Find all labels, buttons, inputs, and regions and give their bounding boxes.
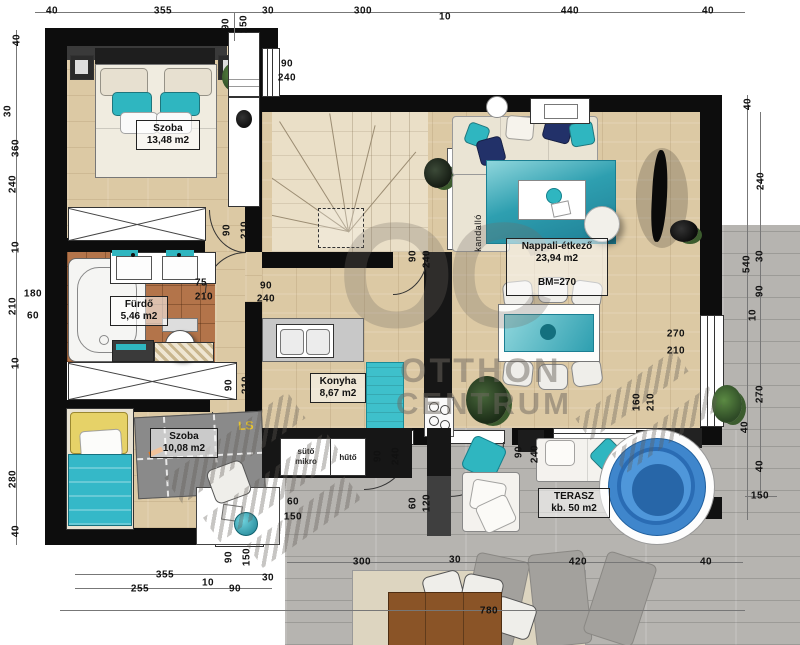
dimension-label: 30: [3, 105, 14, 117]
window-step: [262, 48, 280, 97]
dim-line-right-outer: [747, 95, 748, 520]
wardrobe-xbox-1: [68, 207, 206, 241]
pouf: [584, 206, 620, 242]
dimension-label: 255: [131, 584, 149, 595]
room-label-bathroom: Fürdő 5,46 m2: [110, 296, 168, 326]
dim-line-right-inner: [760, 112, 761, 497]
outdoor-dining-table: [388, 592, 502, 645]
dimension-label: 300: [354, 6, 372, 17]
bed-double-headboard: [95, 48, 215, 64]
sink-right: [162, 256, 198, 280]
dimension-label: 40: [12, 34, 23, 46]
wall-left: [45, 28, 67, 545]
outdoor-pillow: [545, 440, 575, 466]
sink-bowl: [306, 329, 330, 355]
plant-dark: [424, 158, 452, 188]
dim-line-left: [16, 30, 17, 545]
dining-chair: [570, 358, 603, 388]
console-table: [530, 98, 590, 124]
console-inner: [544, 104, 578, 119]
dimension-label: 40: [46, 6, 58, 17]
dimension-label: 240: [278, 73, 296, 84]
room-area: 10,08 m2: [163, 443, 205, 454]
dim-line-780: [60, 610, 745, 611]
wall-right-upper: [700, 112, 722, 315]
plant-on-cabinet: [236, 110, 252, 128]
dimension-label: 90: [281, 59, 293, 70]
kitchen-sink-unit: [276, 324, 334, 358]
room-label-bedroom2: Szoba 10,08 m2: [150, 428, 218, 458]
plant-console-dark: [670, 220, 698, 242]
dimension-label: 355: [154, 6, 172, 17]
dimension-label: 60: [27, 311, 39, 322]
dimension-label: 10: [202, 578, 214, 589]
room-label-bedroom1: Szoba 13,48 m2: [136, 120, 200, 150]
outdoor-armchair: [462, 472, 520, 532]
washer-towels-teal: [116, 344, 146, 350]
dimension-label: 355: [156, 570, 174, 581]
room-name: Szoba: [169, 431, 198, 442]
dimension-label: 40: [743, 98, 754, 110]
room-name: Fürdő: [125, 299, 153, 310]
dim-line-bottom1: [75, 574, 272, 575]
dim-line-terrace: [287, 562, 743, 563]
hot-tub-deep: [632, 464, 684, 516]
round-plate: [486, 96, 508, 118]
dimension-label: 30: [262, 6, 274, 17]
terrace-block-gray: [427, 476, 451, 536]
faucet-dot: [177, 253, 181, 257]
room-height-note: BM=270: [538, 277, 576, 288]
dimension-label: 440: [561, 6, 579, 17]
wardrobe-xbox-2: [68, 362, 237, 400]
room-area: 8,67 m2: [320, 388, 357, 399]
room-label-terrace: TERASZ kb. 50 m2: [538, 488, 610, 518]
bathtub-drain: [99, 335, 109, 345]
wall-step: [262, 28, 278, 48]
nightstand-left: [70, 55, 94, 80]
room-label-kitchen: Konyha 8,67 m2: [310, 373, 366, 403]
room-name: TERASZ: [554, 491, 594, 502]
dim-line-top-connector: [234, 13, 235, 41]
faucet-dot: [131, 253, 135, 257]
dimension-label: 240: [756, 172, 767, 190]
room-area: kb. 50 m2: [551, 503, 597, 514]
dimension-label: 180: [24, 289, 42, 300]
terrace-block: [427, 428, 451, 476]
pillow-teal: [568, 120, 596, 148]
floor-plan: LS sütő mikro hűtő: [0, 0, 800, 645]
watermark-line2: CENTRUM: [396, 386, 572, 422]
room-name: Szoba: [153, 123, 182, 134]
cabinet-top: [228, 32, 260, 97]
dim-line-150: [745, 496, 777, 497]
nightstand-top: [75, 60, 88, 74]
sink-left: [116, 256, 152, 280]
fireplace-label: kandalló: [473, 214, 483, 252]
room-name: Konyha: [320, 376, 357, 387]
room-area: 13,48 m2: [147, 135, 189, 146]
door-sill-hatch: [154, 342, 214, 362]
dimension-label: 90: [224, 551, 235, 563]
room-label-living: Nappali-étkező 23,94 m2 BM=270: [506, 238, 608, 296]
dimension-label: 90: [229, 584, 241, 595]
floor-hall-gap: [245, 252, 262, 302]
dim-line-top: [35, 12, 745, 13]
sink-bowl: [280, 329, 304, 355]
dim-line-bottom2: [75, 588, 272, 589]
room-name: Nappali-étkező: [522, 241, 593, 252]
room-area: 23,94 m2: [536, 253, 578, 264]
dimension-label: 10: [439, 12, 451, 23]
room-area: 5,46 m2: [121, 311, 158, 322]
dimension-label: 40: [702, 6, 714, 17]
blanket-teal: [68, 454, 132, 526]
